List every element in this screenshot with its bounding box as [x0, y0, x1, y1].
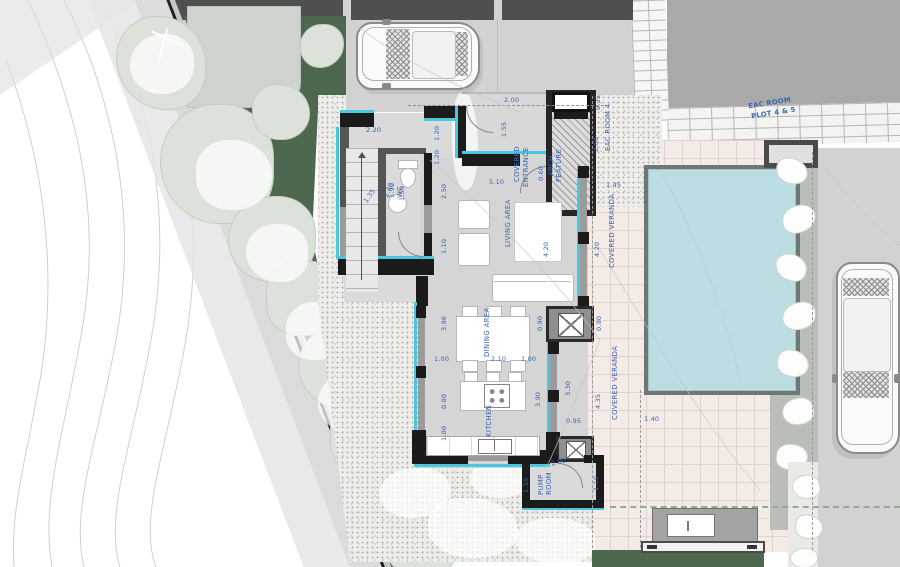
- stair-arrow: [361, 156, 362, 280]
- wall-segment: [378, 148, 386, 258]
- arch-lintel: [554, 112, 588, 119]
- armchair: [458, 233, 490, 266]
- wall-pier: [416, 306, 426, 318]
- dining-table: [456, 316, 530, 362]
- bench-leg: [747, 545, 757, 549]
- car-top: [356, 22, 478, 88]
- wall-pier: [548, 390, 559, 402]
- porch-step-line: [462, 92, 548, 94]
- foliage-highlight: [246, 224, 308, 282]
- irrigation-line: [610, 506, 900, 508]
- kitchen-sink: [478, 439, 512, 454]
- insulation-line: [455, 106, 458, 158]
- car-windshield: [386, 29, 410, 79]
- sofa-back-line: [493, 281, 571, 282]
- car-mirror: [832, 374, 838, 383]
- bench-leg: [647, 545, 657, 549]
- car-mirror: [382, 19, 391, 25]
- car-roof: [412, 31, 456, 79]
- sink-divider: [494, 440, 495, 451]
- car-rear-window: [456, 32, 468, 76]
- bbq-unit: [652, 508, 758, 543]
- wall-pier: [548, 342, 559, 354]
- bbq-inset: [667, 514, 715, 537]
- sofa: [492, 274, 574, 302]
- street-wall-segment: [351, 0, 494, 20]
- armchair: [458, 200, 490, 229]
- foliage-highlight: [196, 140, 272, 210]
- neighbour-block: [667, 0, 900, 108]
- insulation-line: [336, 127, 339, 259]
- chimney-flue: [558, 313, 584, 337]
- setout-line: [640, 390, 641, 548]
- stair-arrow-head: [358, 152, 366, 158]
- wall-pier: [340, 113, 374, 127]
- wall-segment: [462, 154, 520, 166]
- stepping-stone: [790, 548, 818, 567]
- wall-pier: [416, 276, 428, 306]
- dimension-line: [408, 105, 604, 106]
- car-top: [836, 262, 898, 452]
- wash-basin: [388, 194, 407, 213]
- garden-bench: [641, 541, 765, 553]
- car-rear-window: [843, 278, 889, 296]
- tree-canopy: [252, 84, 310, 140]
- wall-pier: [416, 366, 426, 378]
- dining-chair: [486, 360, 502, 372]
- car-mirror: [894, 374, 900, 383]
- wall-segment: [424, 153, 432, 205]
- car-roof: [843, 298, 891, 372]
- wall-pier: [578, 232, 589, 244]
- utility-shaft-inner: [566, 441, 586, 459]
- street-wall-segment: [502, 0, 633, 20]
- setout-line: [592, 96, 593, 548]
- dining-chair: [462, 360, 478, 372]
- wall-segment: [522, 455, 530, 505]
- wall-segment: [386, 148, 426, 154]
- car-mirror: [382, 83, 391, 89]
- staircase: [346, 148, 378, 292]
- bbq-detail: [687, 521, 689, 531]
- arch-portal: [552, 92, 590, 112]
- wall-segment: [596, 455, 604, 505]
- dining-chair: [510, 360, 526, 372]
- living-rug: [514, 202, 562, 262]
- wall-pier: [578, 166, 589, 178]
- wall-segment: [530, 455, 558, 463]
- car-windshield: [843, 372, 889, 398]
- setout-line: [812, 152, 813, 550]
- cooktop: [484, 384, 510, 408]
- site-plan: LIVING AREADINING AREAKITCHENPUMPROOMCOV…: [0, 0, 900, 567]
- window-band: [424, 205, 432, 233]
